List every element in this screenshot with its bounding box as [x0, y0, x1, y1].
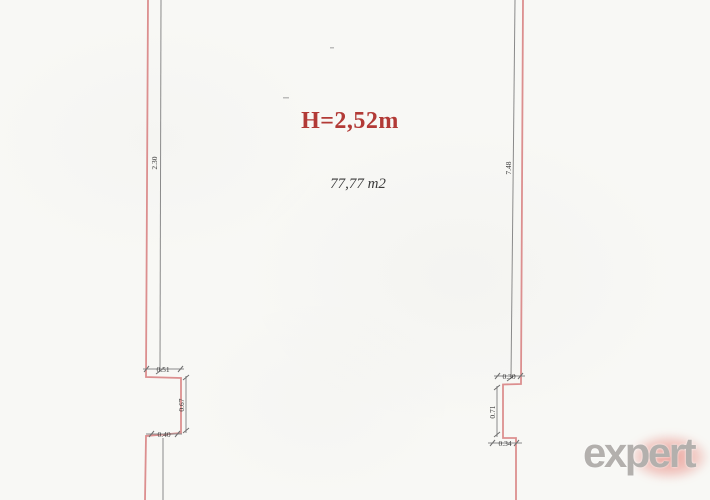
right-wall-dimension-label: 7.48	[504, 161, 513, 174]
right-notch-bottom-label: 0.34	[498, 439, 511, 448]
right-wall-outline	[503, 0, 523, 500]
left-wall-dimension-label: 2.30	[150, 156, 159, 169]
room-height-label: H=2,52m	[301, 108, 399, 134]
right-notch-width-label: 0.30	[502, 372, 515, 381]
room-area-label: 77,77 m2	[330, 176, 386, 192]
left-wall-outline	[145, 0, 181, 500]
scan-speck	[283, 97, 289, 99]
left-notch-depth-label: 0.67	[177, 398, 186, 411]
left-notch-width-label: 0.51	[156, 365, 169, 374]
right-dimension-line	[511, 0, 515, 378]
scan-speck	[330, 47, 334, 49]
left-dimension-line	[160, 0, 161, 371]
scanned-floor-plan-page: 2.30 7.48 0.51 0.67 0.40 0.30 0.71 0.34	[0, 0, 710, 500]
left-notch-bottom-label: 0.40	[157, 430, 170, 439]
floor-plan-drawing: 2.30 7.48 0.51 0.67 0.40 0.30 0.71 0.34	[0, 0, 710, 500]
right-notch-depth-label: 0.71	[488, 405, 497, 418]
